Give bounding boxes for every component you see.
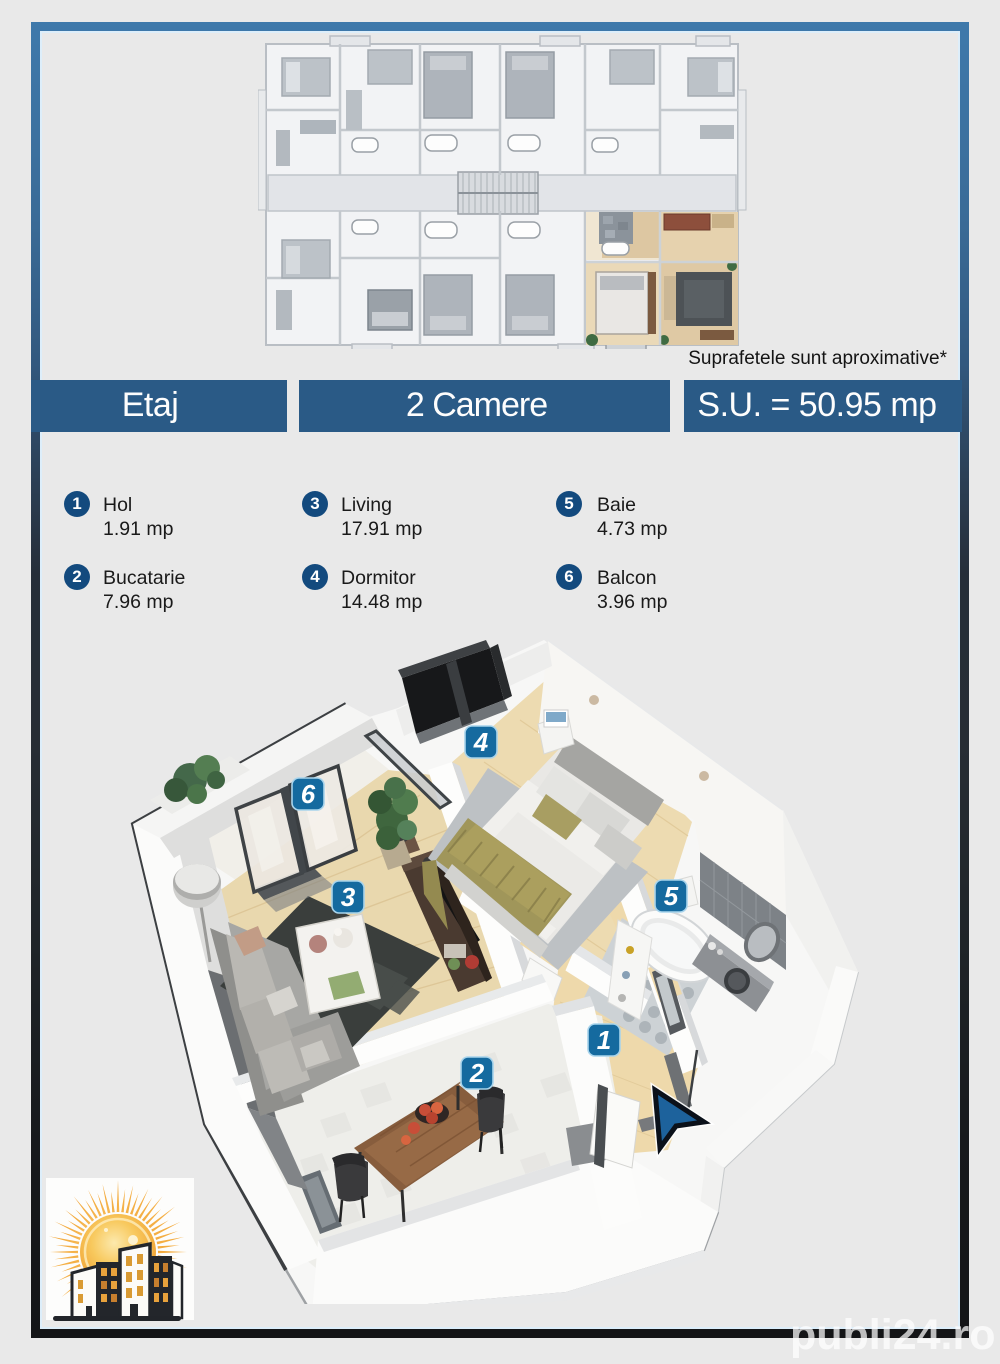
svg-text:5: 5 xyxy=(664,881,679,911)
svg-text:1: 1 xyxy=(597,1025,611,1055)
svg-text:4: 4 xyxy=(473,727,489,757)
svg-text:3: 3 xyxy=(341,882,356,912)
svg-text:2: 2 xyxy=(469,1058,485,1088)
svg-text:6: 6 xyxy=(301,779,316,809)
